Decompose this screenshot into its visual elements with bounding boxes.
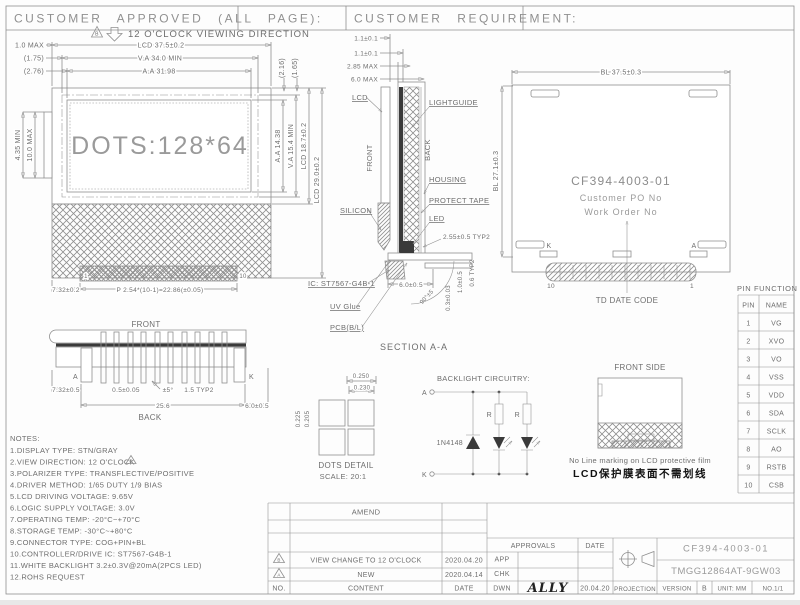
svg-text:10: 10 xyxy=(547,283,555,290)
diode-part-label: 1N4148 xyxy=(437,440,463,447)
customer-requirement-label: CUSTOMER REQUIREMENT: xyxy=(354,12,578,26)
svg-text:90°±5: 90°±5 xyxy=(419,289,435,306)
col-header-pin: PIN xyxy=(742,303,755,310)
svg-text:AO: AO xyxy=(771,447,782,454)
protective-film-note-en: No Line marking on LCD protective film xyxy=(569,456,711,465)
pcb xyxy=(388,253,472,260)
svg-text:VIEW CHANGE TO 12 O'CLOCK: VIEW CHANGE TO 12 O'CLOCK xyxy=(310,558,421,565)
svg-text:1.1±0.1: 1.1±0.1 xyxy=(354,51,378,58)
svg-text:0.230: 0.230 xyxy=(354,386,371,392)
note-item: 3.POLARIZER TYPE: TRANSFLECTIVE/POSITIVE xyxy=(10,469,194,478)
approvals-date-header: DATE xyxy=(585,543,604,550)
led-symbol xyxy=(521,437,533,449)
svg-text:(1.75): (1.75) xyxy=(24,56,44,63)
note-item: 2.VIEW DIRECTION: 12 O'CLOCK xyxy=(10,458,135,467)
svg-text:2020.04.14: 2020.04.14 xyxy=(445,572,483,579)
svg-text:V.A 34.0 MIN: V.A 34.0 MIN xyxy=(138,56,182,63)
svg-text:VDD: VDD xyxy=(769,393,785,400)
svg-text:LIGHTGUIDE: LIGHTGUIDE xyxy=(429,98,478,107)
svg-text:(2.16): (2.16) xyxy=(279,58,286,78)
backlight-circuit: BACKLIGHT CIRCUITRY: A K 1N4148 R R xyxy=(422,374,540,479)
svg-text:B: B xyxy=(277,558,280,563)
dots-detail-scale: SCALE: 20:1 xyxy=(320,472,367,481)
svg-text:1: 1 xyxy=(690,283,694,290)
pin-function-table: PIN FUNCTION PIN NAME 1VG 2XVO 3VO 4VSS … xyxy=(737,284,798,493)
dots-detail: 0.250 0.230 0.225 0.205 DOTS DETAIL SCAL… xyxy=(296,374,376,481)
version-label: VERSION xyxy=(662,587,691,593)
svg-text:9: 9 xyxy=(746,465,750,472)
svg-text:2.55±0.5 TYP2: 2.55±0.5 TYP2 xyxy=(443,234,490,241)
svg-text:K: K xyxy=(422,472,427,479)
svg-text:R: R xyxy=(487,412,492,419)
svg-text:B: B xyxy=(129,459,132,464)
viewing-direction-note: B 12 O'CLOCK VIEWING DIRECTION xyxy=(92,27,310,42)
svg-text:SDA: SDA xyxy=(769,411,784,418)
front-view: DOTS:128*64 LCD 37.5±0.2 V.A 34.0 MIN A.… xyxy=(15,42,326,294)
backlight-title: BACKLIGHT CIRCUITRY: xyxy=(437,374,530,383)
viewing-direction-label: 12 O'CLOCK VIEWING DIRECTION xyxy=(128,29,310,40)
svg-text:LCD: LCD xyxy=(352,93,368,102)
svg-text:1.1±0.1: 1.1±0.1 xyxy=(354,36,378,43)
svg-text:LCD 18.7±0.2: LCD 18.7±0.2 xyxy=(301,123,308,170)
pin-header-strip xyxy=(546,263,696,281)
drawing-canvas: CUSTOMER APPROVED (ALL PAGE): CUSTOMER R… xyxy=(0,0,800,600)
pin-table-rows: 1VG 2XVO 3VO 4VSS 5VDD 6SDA 7SCLK 8AO 9R… xyxy=(744,321,786,490)
section-aa-view: 1.1±0.1 1.1±0.1 2.85 MAX 6.0 MAX 6.0±0.5… xyxy=(308,34,490,352)
svg-text:7: 7 xyxy=(746,429,750,436)
svg-text:A.A 31.98: A.A 31.98 xyxy=(142,69,175,76)
drawing-part-number: CF394-4003-01 xyxy=(683,544,769,555)
note-item: 1.DISPLAY TYPE: STN/GRAY xyxy=(10,446,118,455)
note-item: 7.OPERATING TEMP: -20°C~+70°C xyxy=(10,515,141,524)
svg-text:CSB: CSB xyxy=(769,483,784,490)
cathode-label: K xyxy=(547,243,552,250)
backlight-cathode-pin xyxy=(234,348,245,382)
down-arrow-icon xyxy=(107,28,122,42)
svg-text:HOUSING: HOUSING xyxy=(429,175,466,184)
svg-text:PCB(B/L): PCB(B/L) xyxy=(330,323,364,332)
projection-label: PROJECTION xyxy=(614,587,656,593)
svg-text:A.A 14.38: A.A 14.38 xyxy=(275,129,282,162)
svg-text:2: 2 xyxy=(746,339,750,346)
backlight-anode-pin xyxy=(81,348,92,382)
svg-text:10: 10 xyxy=(239,274,247,280)
lcd-glass-ledge xyxy=(44,112,52,178)
note-item: 11.WHITE BACKLIGHT 3.2±0.3V@20mA(2PCS LE… xyxy=(10,561,202,570)
svg-text:0.6 TYP2: 0.6 TYP2 xyxy=(470,259,476,287)
note-item: 8.STORAGE TEMP: -30°C~+80°C xyxy=(10,527,133,536)
resistor-symbol xyxy=(495,404,503,424)
led-symbol xyxy=(493,437,505,449)
note-item: 12.ROHS REQUEST xyxy=(10,573,85,582)
svg-text:0.3±0.03: 0.3±0.03 xyxy=(446,285,452,311)
dot-grid xyxy=(319,400,374,455)
svg-text:1: 1 xyxy=(746,321,750,328)
part-number-marking: CF394-4003-01 xyxy=(571,174,671,188)
svg-text:2.85 MAX: 2.85 MAX xyxy=(347,64,378,71)
svg-text:0.5±0.05: 0.5±0.05 xyxy=(112,387,140,394)
front-side-pad-strip xyxy=(612,441,670,448)
app-label: APP xyxy=(495,557,510,564)
svg-text:LED: LED xyxy=(429,214,445,223)
svg-text:3: 3 xyxy=(746,357,750,364)
svg-text:25.6: 25.6 xyxy=(156,403,170,410)
version-value: B xyxy=(702,586,707,593)
chk-label: CHK xyxy=(494,571,510,578)
pin-side-view: FRONT A K 7.32±0.5 0.5±0.05 ±5° 1.5 TYP2… xyxy=(50,320,269,422)
svg-text:K: K xyxy=(249,374,254,381)
svg-text:XVO: XVO xyxy=(769,339,785,346)
led-branch-1: R xyxy=(487,392,512,474)
led-branch-2: R xyxy=(515,392,540,474)
svg-text:R: R xyxy=(515,412,520,419)
approvals-header: APPROVALS xyxy=(511,543,556,550)
svg-text:BL 37.5±0.3: BL 37.5±0.3 xyxy=(601,70,642,77)
front-label: FRONT xyxy=(131,320,160,329)
revision-mark: B xyxy=(95,32,99,38)
dwn-label: DWN xyxy=(493,586,511,593)
display-resolution-text: DOTS:128*64 xyxy=(71,132,249,160)
svg-text:10: 10 xyxy=(744,483,752,490)
svg-text:V.A 15.4 MIN: V.A 15.4 MIN xyxy=(288,124,295,168)
svg-text:VO: VO xyxy=(771,357,782,364)
section-title: SECTION A-A xyxy=(380,342,448,352)
svg-text:(1.65): (1.65) xyxy=(292,58,299,78)
svg-text:RSTB: RSTB xyxy=(767,465,787,472)
svg-text:PROTECT TAPE: PROTECT TAPE xyxy=(429,196,489,205)
front-side-view: FRONT SIDE No Line marking on LCD protec… xyxy=(569,363,711,480)
svg-text:UV Glue: UV Glue xyxy=(330,302,360,311)
work-order-marking: Work Order No xyxy=(584,207,657,217)
svg-text:5: 5 xyxy=(746,393,750,400)
lightguide xyxy=(404,87,419,253)
svg-text:7.32±0.2: 7.32±0.2 xyxy=(52,287,80,294)
note-item: 6.LOGIC SUPPLY VOLTAGE: 3.0V xyxy=(10,504,135,513)
back-view: K A CF394-4003-01 Customer PO No Work Or… xyxy=(493,70,730,306)
lcd-cell xyxy=(381,87,390,203)
anode-label: A xyxy=(692,243,697,250)
svg-text:NEW: NEW xyxy=(357,572,374,579)
col-header-name: NAME xyxy=(766,303,787,310)
svg-text:8: 8 xyxy=(746,447,750,454)
amend-header: AMEND xyxy=(352,508,381,517)
svg-text:A: A xyxy=(277,573,280,578)
svg-text:FRONT: FRONT xyxy=(365,144,374,171)
notes: NOTES: 1.DISPLAY TYPE: STN/GRAY 2.VIEW D… xyxy=(10,434,202,582)
svg-text:1.0±0.5: 1.0±0.5 xyxy=(458,271,464,293)
svg-text:4: 4 xyxy=(746,375,750,382)
svg-text:A: A xyxy=(422,390,427,397)
svg-text:10.0 MAX: 10.0 MAX xyxy=(27,128,34,161)
svg-text:1.0 MAX: 1.0 MAX xyxy=(15,43,44,50)
svg-text:0.225: 0.225 xyxy=(296,410,302,427)
amend-row-b: B VIEW CHANGE TO 12 O'CLOCK 2020.04.20 xyxy=(274,554,484,565)
drawn-by-signature: ALLY xyxy=(526,581,570,596)
customer-approved-label: CUSTOMER APPROVED (ALL PAGE): xyxy=(14,12,323,26)
svg-text:SCLK: SCLK xyxy=(767,429,787,436)
svg-text:6: 6 xyxy=(746,411,750,418)
amend-row-a: A NEW 2020.04.14 xyxy=(274,569,484,580)
resistor-symbol xyxy=(523,404,531,424)
dots-dimensions: 0.250 0.230 0.225 0.205 xyxy=(296,374,376,427)
svg-text:6.0±0.5: 6.0±0.5 xyxy=(245,403,269,410)
customer-po-marking: Customer PO No xyxy=(580,193,663,203)
svg-text:BL 27.1±0.3: BL 27.1±0.3 xyxy=(493,151,500,192)
svg-text:LCD 37.5±0.2: LCD 37.5±0.2 xyxy=(138,43,185,50)
svg-text:2020.04.20: 2020.04.20 xyxy=(445,558,483,565)
svg-text:±5°: ±5° xyxy=(163,386,174,394)
module-top-bar xyxy=(50,330,247,343)
svg-text:6.0±0.5: 6.0±0.5 xyxy=(399,282,423,289)
protection-diode: 1N4148 xyxy=(437,392,480,474)
svg-text:LCD 29.0±0.2: LCD 29.0±0.2 xyxy=(314,157,321,204)
back-label: BACK xyxy=(139,413,162,422)
note-item: 9.CONNECTOR TYPE: COG+PIN+BL xyxy=(10,538,146,547)
drawn-date: 20.04.20 xyxy=(580,586,610,593)
svg-text:7.32±0.5: 7.32±0.5 xyxy=(52,387,80,394)
note-item: 5.LCD DRIVING VOLTAGE: 9.65V xyxy=(10,492,133,501)
title-block: AMEND B VIEW CHANGE TO 12 O'CLOCK 2020.0… xyxy=(268,503,794,596)
model-number: TMGG12864AT-9GW03 xyxy=(671,566,781,577)
pin-pad-strip xyxy=(80,266,237,281)
date-header: DATE xyxy=(454,586,473,593)
no-header: NO. xyxy=(272,586,285,593)
pin-table-title: PIN FUNCTION xyxy=(737,284,798,293)
led-chip xyxy=(400,241,414,253)
page-number: NO.1/1 xyxy=(763,587,784,593)
svg-text:SILICON: SILICON xyxy=(340,206,372,215)
note-item: 10.CONTROLLER/DRIVE IC: ST7567-G4B-1 xyxy=(10,550,172,559)
content-header: CONTENT xyxy=(348,586,384,593)
unit-label: UNIT: MM xyxy=(717,587,746,593)
svg-text:0.205: 0.205 xyxy=(305,410,311,427)
note-item: 4.DRIVER METHOD: 1/65 DUTY 1/9 BIAS xyxy=(10,481,163,490)
svg-text:1: 1 xyxy=(84,274,88,280)
silicon xyxy=(378,203,390,250)
projection-symbol-icon xyxy=(619,550,654,568)
svg-text:4.35 MIN: 4.35 MIN xyxy=(15,130,22,161)
svg-text:0.250: 0.250 xyxy=(353,374,370,380)
front-side-title: FRONT SIDE xyxy=(614,363,665,372)
svg-text:1.5 TYP2: 1.5 TYP2 xyxy=(184,387,213,394)
dots-detail-title: DOTS DETAIL xyxy=(318,461,373,470)
notes-title: NOTES: xyxy=(10,434,40,443)
svg-text:BACK: BACK xyxy=(423,139,432,161)
svg-text:VG: VG xyxy=(771,321,782,328)
svg-text:VSS: VSS xyxy=(769,375,784,382)
svg-text:6.0 MAX: 6.0 MAX xyxy=(351,77,378,84)
drawing-sheet: CUSTOMER APPROVED (ALL PAGE): CUSTOMER R… xyxy=(0,0,800,600)
date-code-label: TD DATE CODE xyxy=(596,296,659,305)
svg-text:P 2.54*(10-1)=22.86(±0.05): P 2.54*(10-1)=22.86(±0.05) xyxy=(117,287,204,294)
svg-text:IC: ST7567-G4B-1: IC: ST7567-G4B-1 xyxy=(308,279,375,288)
protective-film-note-cn: LCD保护膜表面不需划线 xyxy=(573,467,707,480)
svg-text:(2.76): (2.76) xyxy=(24,69,44,76)
svg-text:A: A xyxy=(73,374,78,381)
